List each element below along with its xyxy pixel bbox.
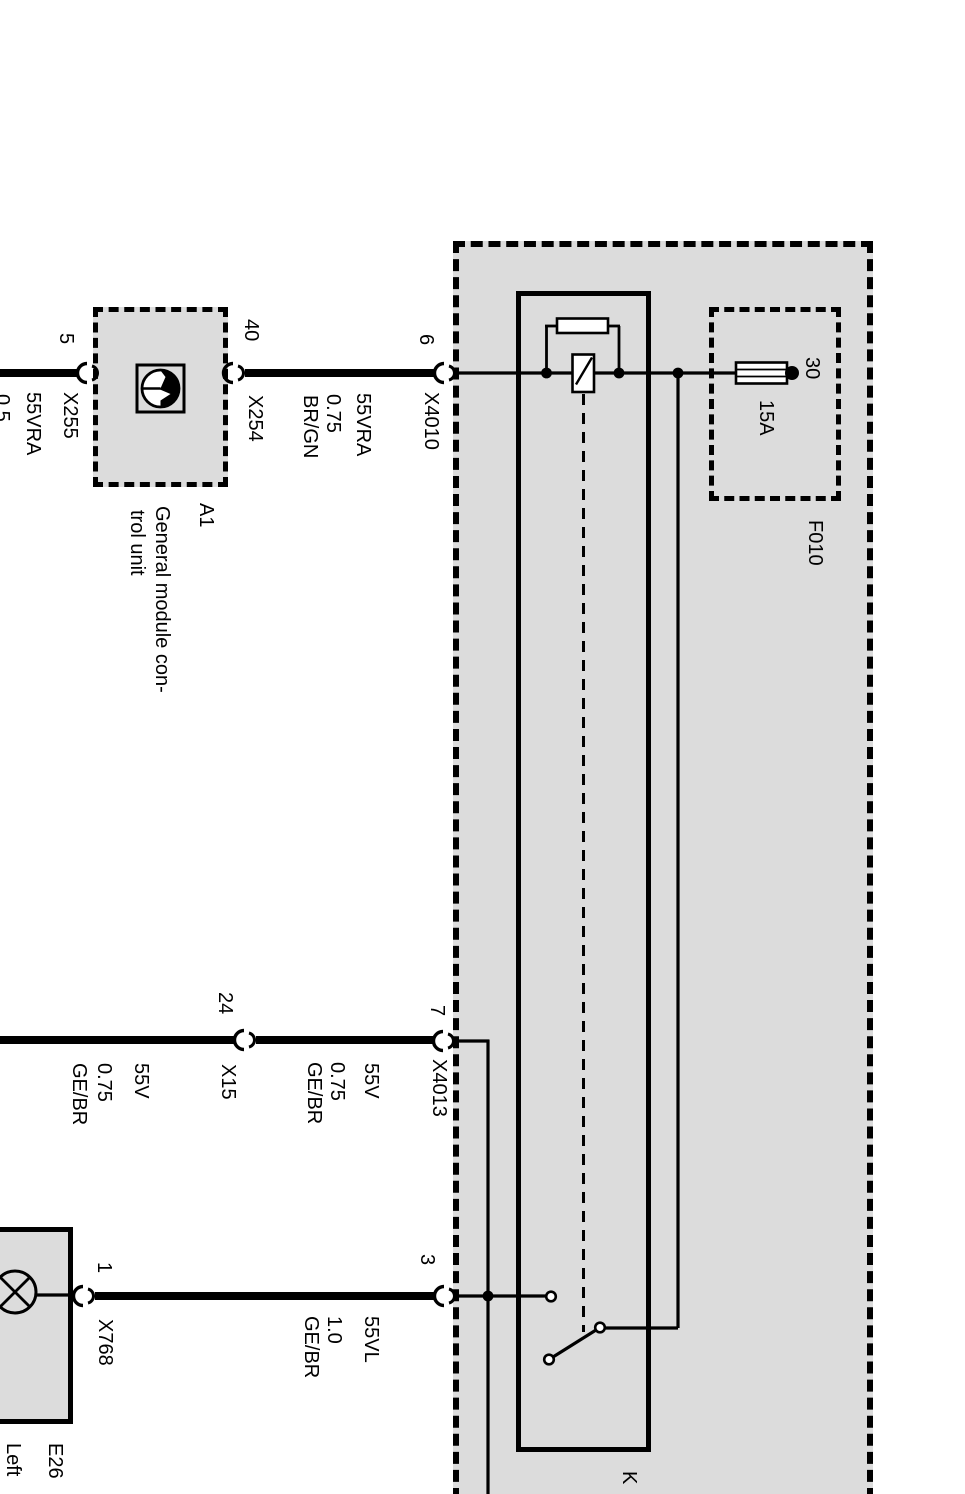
connector-x4010-label: X4010 bbox=[421, 392, 441, 450]
connector-x15-label: X15 bbox=[218, 1064, 238, 1100]
wire-left-top-circuit: 55VRA bbox=[23, 392, 43, 455]
terminal-30-dot bbox=[785, 366, 799, 380]
pin-24-label: 24 bbox=[215, 992, 235, 1014]
wire-middle-color: GE/BR bbox=[304, 1062, 324, 1124]
wire-a1-color: BR/GN bbox=[300, 395, 320, 458]
relay-designation: K bbox=[619, 1471, 639, 1484]
fuse-symbol bbox=[736, 363, 799, 384]
wire-a1-circuit: 55VRA bbox=[353, 393, 373, 456]
connector-x768-label: X768 bbox=[95, 1319, 115, 1366]
wiring-diagram-page: 5 X255 0.5 55VRA A1 General module con- … bbox=[0, 0, 965, 1494]
wire-lamp-circuit: 55VL bbox=[361, 1316, 381, 1363]
control-unit-icon bbox=[137, 365, 184, 412]
pin-1-label: 1 bbox=[94, 1262, 114, 1273]
connector-symbols bbox=[74, 364, 455, 1306]
e26-designation: E26 bbox=[45, 1443, 65, 1479]
pin-6-label: 6 bbox=[416, 334, 436, 345]
a1-description-line2: trol unit bbox=[127, 510, 147, 576]
lamp-icon bbox=[0, 1271, 36, 1313]
wire-left-middle-circuit: 55V bbox=[131, 1063, 151, 1099]
pin-3-label: 3 bbox=[417, 1254, 437, 1265]
connector-box-bottom-symbol bbox=[435, 1287, 455, 1306]
fuse-designation-label: F010 bbox=[805, 520, 825, 566]
a1-designation: A1 bbox=[196, 503, 216, 527]
wire-left-middle-color: GE/BR bbox=[69, 1063, 89, 1125]
connector-x768-symbol bbox=[74, 1287, 94, 1306]
connector-x4013-label: X4013 bbox=[429, 1059, 449, 1117]
connector-x255-label: X255 bbox=[60, 392, 80, 439]
pin-7-label: 7 bbox=[427, 1005, 447, 1016]
pin-5-label: 5 bbox=[56, 333, 76, 344]
wire-middle-circuit: 55V bbox=[361, 1063, 381, 1099]
connector-x255-symbol bbox=[78, 364, 98, 383]
e26-description: Left bbox=[3, 1443, 23, 1476]
terminal-30-label: 30 bbox=[802, 357, 822, 379]
wire-left-middle-gauge: 0.75 bbox=[94, 1063, 114, 1102]
wiring-graphics bbox=[0, 0, 965, 1494]
pin-40-label: 40 bbox=[241, 319, 261, 341]
relay-resistor-symbol bbox=[557, 319, 608, 334]
wire-a1-gauge: 0.75 bbox=[323, 394, 343, 433]
connector-x4010-symbol bbox=[435, 364, 455, 383]
connector-x254-label: X254 bbox=[245, 395, 265, 442]
wire-left-top-gauge: 0.5 bbox=[0, 394, 12, 422]
connector-x15-symbol bbox=[235, 1031, 255, 1050]
connector-x4013-symbol bbox=[434, 1032, 454, 1051]
fuse-rating-label: 15A bbox=[756, 400, 776, 436]
wire-middle-gauge: 0.75 bbox=[327, 1062, 347, 1101]
a1-description-line1: General module con- bbox=[152, 506, 172, 693]
relay-switch-contact bbox=[544, 1292, 605, 1365]
relay-coil-symbol bbox=[573, 355, 595, 393]
wire-lamp-gauge: 1.0 bbox=[324, 1316, 344, 1344]
harness-wires bbox=[0, 373, 434, 1296]
wire-lamp-color: GE/BR bbox=[301, 1316, 321, 1378]
connector-x254-symbol bbox=[224, 364, 244, 383]
